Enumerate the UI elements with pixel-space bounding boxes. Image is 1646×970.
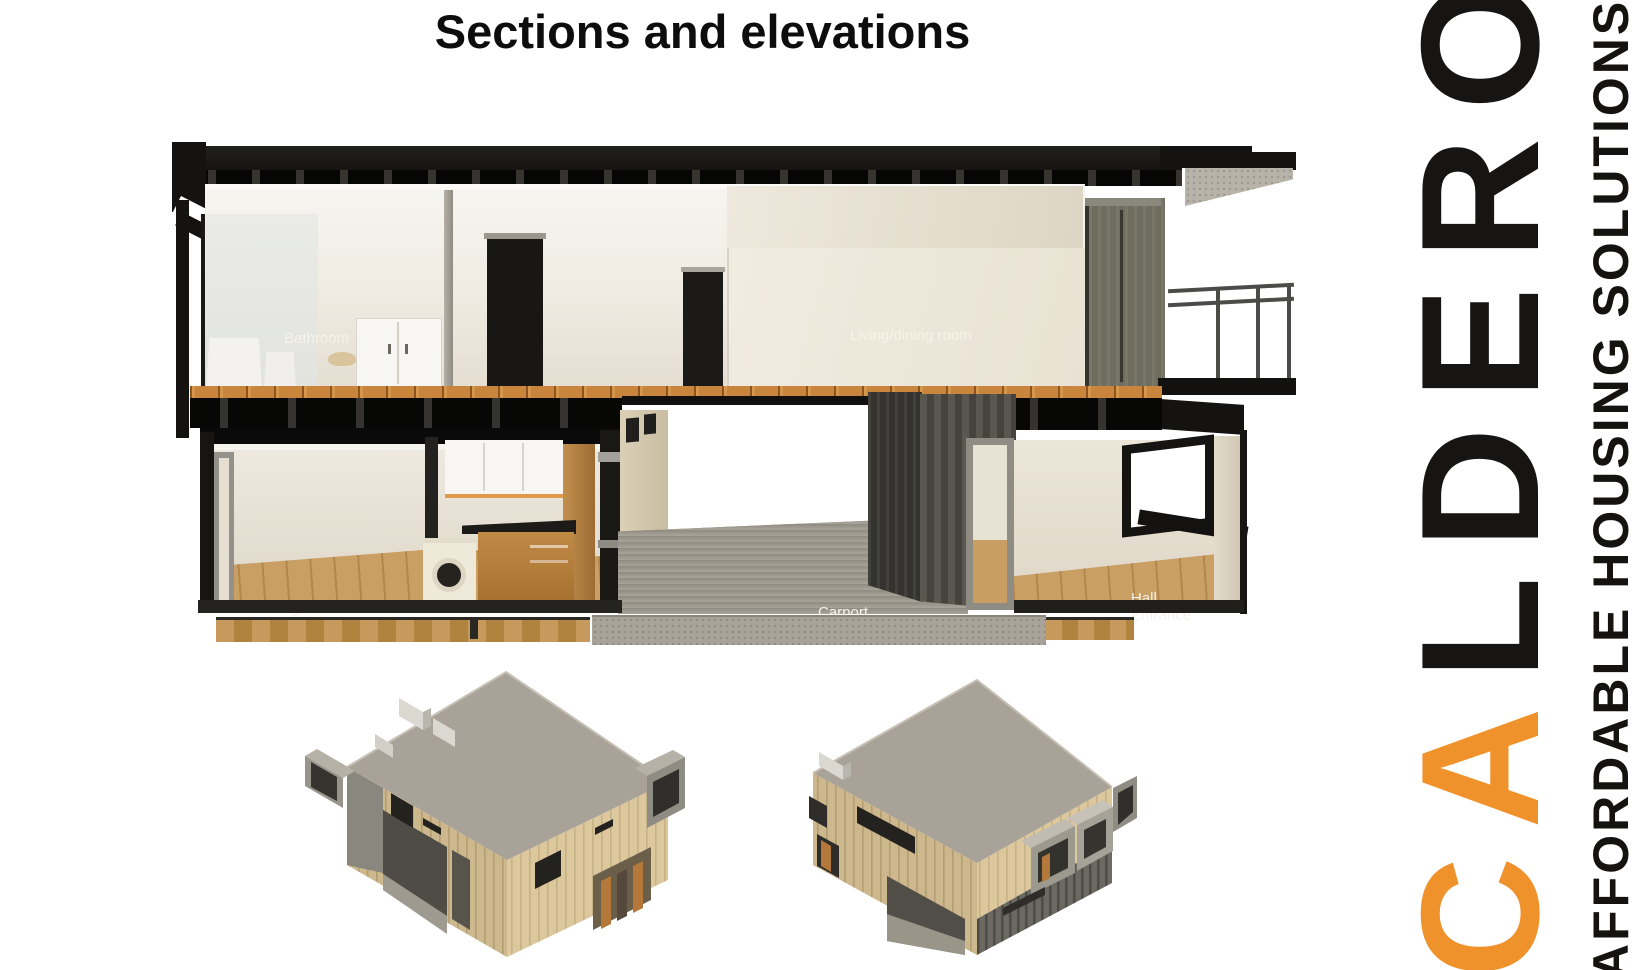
bathroom-vanity: [356, 318, 442, 390]
hall-right-wall: [1214, 436, 1242, 610]
vanity-handle-right: [405, 344, 408, 354]
balcony-post-1: [1216, 290, 1220, 388]
carport-vent-2: [644, 413, 656, 434]
left-house-elevation: [295, 638, 690, 966]
slide-canvas: Sections and elevations Bathroom Living/…: [0, 0, 1646, 970]
washing-machine-door: [432, 558, 466, 592]
kitchen-upper-cabinets: [445, 440, 563, 498]
brand-wordmark: CALDERON: [1396, 0, 1564, 970]
container-doors: [1085, 198, 1165, 390]
lower-left-wall: [200, 432, 214, 604]
container-doors-cap: [1085, 198, 1161, 206]
left-wall-outer: [176, 200, 189, 438]
floor-joists-left: [190, 398, 622, 428]
balcony-post-2: [1256, 287, 1260, 387]
canopy-concrete-underside: [1185, 168, 1293, 206]
floor-joists-right-ext: [1162, 399, 1244, 435]
kitchen-drawer-line-2: [530, 560, 568, 563]
base-strip-hall: [1014, 600, 1244, 613]
kitchen-drawer-line-1: [530, 545, 568, 548]
brand-orange-letters: CA: [1386, 679, 1574, 970]
page-title: Sections and elevations: [170, 4, 1235, 59]
canopy-black-band: [1160, 146, 1252, 168]
canopy-black-step: [1242, 152, 1296, 170]
carport-side-wall: [868, 392, 922, 602]
hall-door-frame: [966, 438, 1014, 610]
ground-wood-tick: [470, 617, 478, 639]
kitchen-cab-seam-2: [522, 443, 524, 491]
balcony-post-3: [1287, 284, 1291, 387]
living-room-wall: [727, 248, 1085, 388]
balcony-base-band: [1158, 378, 1296, 395]
kitchen-base-cabinets: [478, 532, 574, 606]
balcony-rail-mid: [1168, 297, 1294, 308]
brand-tagline: AFFORDABLE HOUSING SOLUTIONS: [1586, 0, 1636, 970]
vanity-door-seam: [397, 322, 399, 384]
ground-wood-right: [1046, 617, 1134, 640]
living-ceiling-shade: [727, 186, 1083, 248]
vanity-handle-left: [388, 344, 391, 354]
room-label-living-dining: Living/dining room: [850, 327, 972, 344]
balcony-rail-top: [1168, 283, 1294, 294]
right-house-elevation: [745, 638, 1145, 960]
kitchen-partition: [425, 437, 438, 541]
bathtub: [206, 338, 262, 391]
upper-door-2-frame: [681, 267, 725, 272]
container-doors-seam: [1120, 210, 1123, 382]
bathroom-bowl: [328, 352, 356, 366]
lower-left-door-glass: [219, 458, 229, 602]
room-label-bathroom: Bathroom: [284, 330, 349, 347]
brand-black-letters: LDERON: [1386, 0, 1574, 679]
carport-vent-1: [626, 417, 639, 442]
bathtub-edge: [264, 352, 296, 388]
upper-partition: [444, 190, 453, 388]
upper-door-1: [487, 238, 543, 388]
upper-door-2: [683, 272, 723, 388]
kitchen-cab-seam-1: [483, 443, 485, 491]
right-edge-trim: [1240, 430, 1247, 614]
base-strip-left: [198, 600, 622, 613]
upper-door-1-frame: [484, 233, 546, 239]
